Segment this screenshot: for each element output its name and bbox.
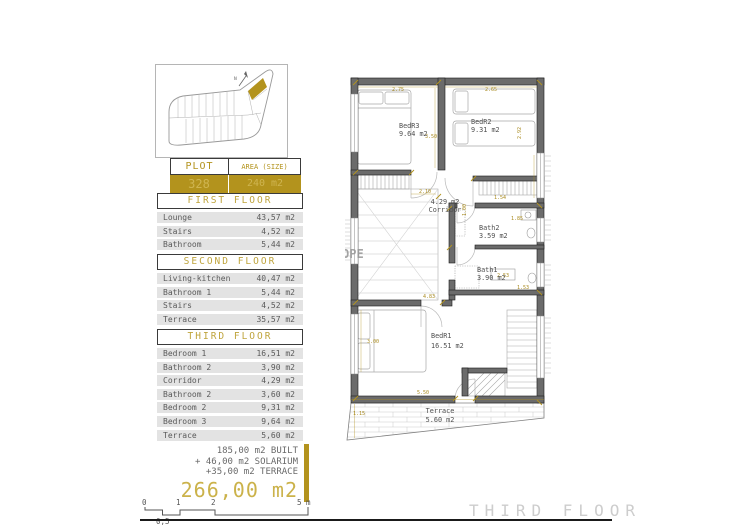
room-label: Bathroom 2 [163, 362, 211, 373]
room-label: Corridor [163, 375, 202, 386]
dim-terrace-width: 5.50 [417, 390, 429, 396]
area-row: Bathroom5,44 m2 [157, 239, 303, 250]
plot-table-values: 328 240 m2 [170, 175, 301, 193]
room-area: 5,60 m2 [261, 430, 295, 441]
room-area-terrace: 5.60 m2 [426, 416, 455, 424]
dim-bedr1-width: 4.83 [423, 294, 435, 300]
dim-bath1-height: 1.53 [517, 285, 529, 291]
room-area-bedr3: 9.64 m2 [399, 130, 428, 138]
site-plan-map: N [155, 64, 288, 158]
scale-tick-5m: 5 m [297, 498, 311, 507]
scale-tick-1: 1 [176, 498, 181, 507]
room-area: 9,64 m2 [261, 416, 295, 427]
area-row: Corridor4,29 m2 [157, 375, 303, 386]
area-row: Bathroom 23,60 m2 [157, 389, 303, 400]
dim-bedr1-height: 3.00 [367, 339, 379, 345]
plot-number: 328 [170, 175, 229, 193]
area-row: Bathroom 23,90 m2 [157, 362, 303, 373]
dim-corridor-height: 1.00 [462, 204, 468, 216]
room-label: Bathroom 1 [163, 287, 211, 298]
room-area: 4,52 m2 [261, 300, 295, 311]
dim-bedr2-width: 2.65 [485, 87, 497, 93]
room-area: 9,31 m2 [261, 402, 295, 413]
dim-bedr2-height: 2.92 [517, 127, 523, 139]
area-row: Stairs4,52 m2 [157, 226, 303, 237]
room-label: Bedroom 1 [163, 348, 206, 359]
room-label-bath2: Bath2 [479, 224, 499, 232]
area-row: Bedroom 116,51 m2 [157, 348, 303, 359]
area-row: Bedroom 39,64 m2 [157, 416, 303, 427]
dim-bath2-width: 1.54 [494, 195, 506, 201]
plot-area-value: 240 m2 [229, 175, 301, 193]
summary-solarium: + 46,00 m2 SOLARIUM [150, 457, 298, 468]
room-label-bedr3: BedR3 [399, 122, 419, 130]
section-title: SECOND FLOOR [157, 254, 303, 270]
dim-bedr3-width: 2.75 [392, 87, 404, 93]
section-title: THIRD FLOOR [157, 329, 303, 345]
summary-accent-bar [304, 444, 309, 502]
area-row: Bedroom 29,31 m2 [157, 402, 303, 413]
third-floor-plan: 2.75 2.65 3.50 2.92 2.10 1.00 1.54 1.85 … [345, 58, 557, 462]
room-area-bath1: 3.90 m2 [477, 274, 506, 282]
room-label: Bathroom 2 [163, 389, 211, 400]
dim-corridor-width: 2.10 [419, 189, 431, 195]
area-row: Bathroom 15,44 m2 [157, 287, 303, 298]
room-label: Living-kitchen [163, 273, 230, 284]
room-label-bath1: Bath1 [477, 266, 497, 274]
room-label: Bedroom 3 [163, 416, 206, 427]
watermark-text: OPE [345, 247, 364, 261]
room-area: 43,57 m2 [256, 212, 295, 223]
scale-tick-2: 2 [211, 498, 216, 507]
area-row: Terrace5,60 m2 [157, 430, 303, 441]
room-area: 4,52 m2 [261, 226, 295, 237]
svg-text:N: N [234, 76, 237, 82]
north-arrow-icon: N [234, 71, 248, 86]
area-row: Terrace35,57 m2 [157, 314, 303, 325]
room-area: 35,57 m2 [256, 314, 295, 325]
sheet-floor-title: THIRD FLOOR [469, 501, 641, 520]
floorplan-sheet: N PLOT AREA (SIZE) 328 240 m2 FIRST FLOO… [0, 0, 756, 528]
section-third-floor: THIRD FLOOR Bedroom 116,51 m2 Bathroom 2… [157, 329, 303, 441]
area-row: Living-kitchen40,47 m2 [157, 273, 303, 284]
summary-terrace: +35,00 m2 TERRACE [150, 467, 298, 478]
room-area-corridor: 4.29 m2 [431, 198, 460, 206]
room-label-terrace: Terrace [426, 407, 455, 415]
dim-bath2-height: 1.85 [511, 216, 523, 222]
room-label: Bathroom [163, 239, 202, 250]
room-label: Stairs [163, 226, 192, 237]
area-row: Stairs4,52 m2 [157, 300, 303, 311]
floor-area-tables: FIRST FLOOR Lounge43,57 m2 Stairs4,52 m2… [157, 193, 303, 445]
section-first-floor: FIRST FLOOR Lounge43,57 m2 Stairs4,52 m2… [157, 193, 303, 250]
room-area: 5,44 m2 [261, 239, 295, 250]
room-label-bedr1: BedR1 [431, 332, 451, 340]
plot-header-cell: PLOT [171, 159, 229, 174]
dim-terrace-height: 1.15 [353, 411, 365, 417]
room-label: Bedroom 2 [163, 402, 206, 413]
summary-built: 185,00 m2 BUILT [150, 446, 298, 457]
area-summary: 185,00 m2 BUILT + 46,00 m2 SOLARIUM +35,… [150, 446, 298, 502]
room-area: 40,47 m2 [256, 273, 295, 284]
room-area: 4,29 m2 [261, 375, 295, 386]
room-area: 3,90 m2 [261, 362, 295, 373]
room-label-bedr2: BedR2 [471, 118, 491, 126]
plot-table-header: PLOT AREA (SIZE) [170, 158, 301, 175]
room-area: 3,60 m2 [261, 389, 295, 400]
area-header-cell: AREA (SIZE) [229, 159, 300, 174]
scale-tick-0: 0 [142, 498, 147, 507]
area-row: Lounge43,57 m2 [157, 212, 303, 223]
room-area-bedr1: 16.51 m2 [431, 342, 464, 350]
room-area-bedr2: 9.31 m2 [471, 126, 500, 134]
room-label: Lounge [163, 212, 192, 223]
scale-bar-line [145, 507, 308, 515]
room-area: 5,44 m2 [261, 287, 295, 298]
room-area: 16,51 m2 [256, 348, 295, 359]
section-title: FIRST FLOOR [157, 193, 303, 209]
stairs-icon [355, 189, 438, 300]
room-label: Terrace [163, 430, 197, 441]
room-label: Terrace [163, 314, 197, 325]
room-label-corridor: Corridor [429, 206, 462, 214]
room-label: Stairs [163, 300, 192, 311]
site-plan-drawing: N [156, 65, 285, 155]
room-area-bath2: 3.59 m2 [479, 232, 508, 240]
plot-info-table: PLOT AREA (SIZE) 328 240 m2 [170, 158, 301, 193]
section-second-floor: SECOND FLOOR Living-kitchen40,47 m2 Bath… [157, 254, 303, 325]
